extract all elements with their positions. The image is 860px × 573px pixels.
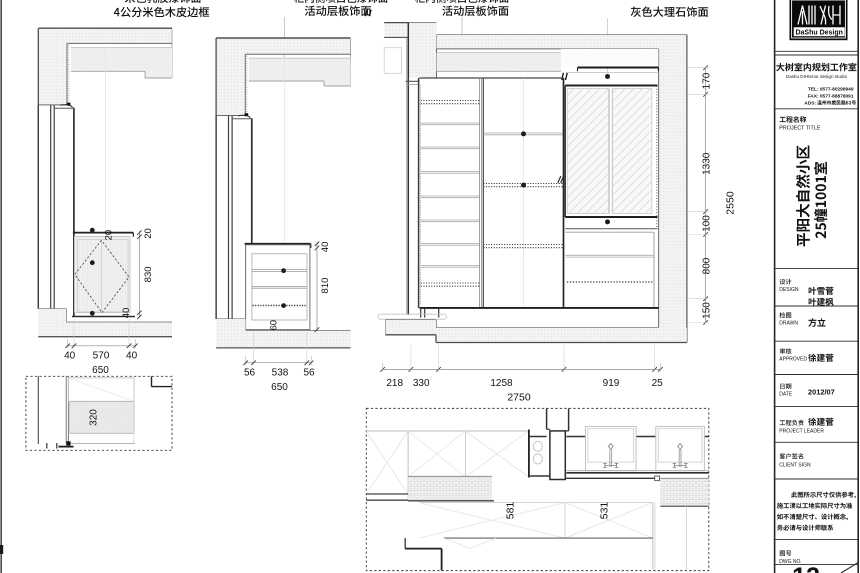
svg-text:PROJECT LEADER: PROJECT LEADER — [779, 429, 824, 435]
svg-text:40: 40 — [320, 242, 331, 253]
svg-text:20: 20 — [104, 230, 115, 241]
svg-text:810: 810 — [320, 278, 331, 294]
svg-text:12: 12 — [792, 563, 820, 573]
svg-text:830: 830 — [143, 266, 154, 282]
svg-text:56: 56 — [244, 368, 256, 379]
svg-text:CLIENT SIGN: CLIENT SIGN — [779, 463, 811, 469]
svg-text:1330: 1330 — [702, 152, 713, 175]
svg-text:Dashu DIHterior design studio: Dashu DIHterior design studio — [786, 74, 848, 79]
svg-text:DaShu Design: DaShu Design — [795, 29, 842, 36]
svg-text:2550: 2550 — [725, 191, 737, 215]
svg-text:800: 800 — [702, 257, 713, 274]
svg-text:581: 581 — [505, 502, 517, 520]
svg-text:531: 531 — [599, 502, 611, 520]
svg-text:56: 56 — [303, 368, 315, 379]
svg-text:2750: 2750 — [507, 391, 531, 403]
svg-text:FAX: 0577-88878091: FAX: 0577-88878091 — [808, 94, 854, 100]
svg-text:60: 60 — [269, 320, 280, 331]
svg-text:650: 650 — [92, 365, 109, 376]
svg-text:650: 650 — [271, 382, 288, 393]
svg-text:1258: 1258 — [490, 378, 513, 389]
svg-text:20: 20 — [143, 228, 154, 239]
svg-text:TEL: 0577-80298949: TEL: 0577-80298949 — [808, 87, 854, 93]
svg-text:538: 538 — [272, 368, 289, 379]
svg-text:570: 570 — [93, 351, 110, 362]
svg-text:40: 40 — [126, 351, 138, 362]
svg-text:40: 40 — [121, 308, 132, 319]
svg-text:DESIGN: DESIGN — [779, 287, 799, 293]
svg-text:320: 320 — [89, 409, 100, 426]
svg-text:ADS:: ADS: — [804, 100, 816, 106]
svg-text:DATE: DATE — [779, 392, 793, 398]
svg-text:218: 218 — [386, 378, 403, 389]
svg-text:170: 170 — [702, 72, 713, 89]
svg-text:PROJECT TITLE: PROJECT TITLE — [779, 126, 821, 132]
svg-text:150: 150 — [702, 302, 713, 319]
svg-text:25: 25 — [652, 378, 664, 389]
svg-text:919: 919 — [603, 378, 620, 389]
svg-text:2012/07: 2012/07 — [808, 388, 835, 397]
svg-text:330: 330 — [413, 378, 430, 389]
svg-text:DRAWN: DRAWN — [779, 321, 798, 327]
svg-text:40: 40 — [64, 351, 76, 362]
svg-text:APPROVED: APPROVED — [779, 357, 807, 363]
svg-text:100: 100 — [702, 215, 713, 232]
